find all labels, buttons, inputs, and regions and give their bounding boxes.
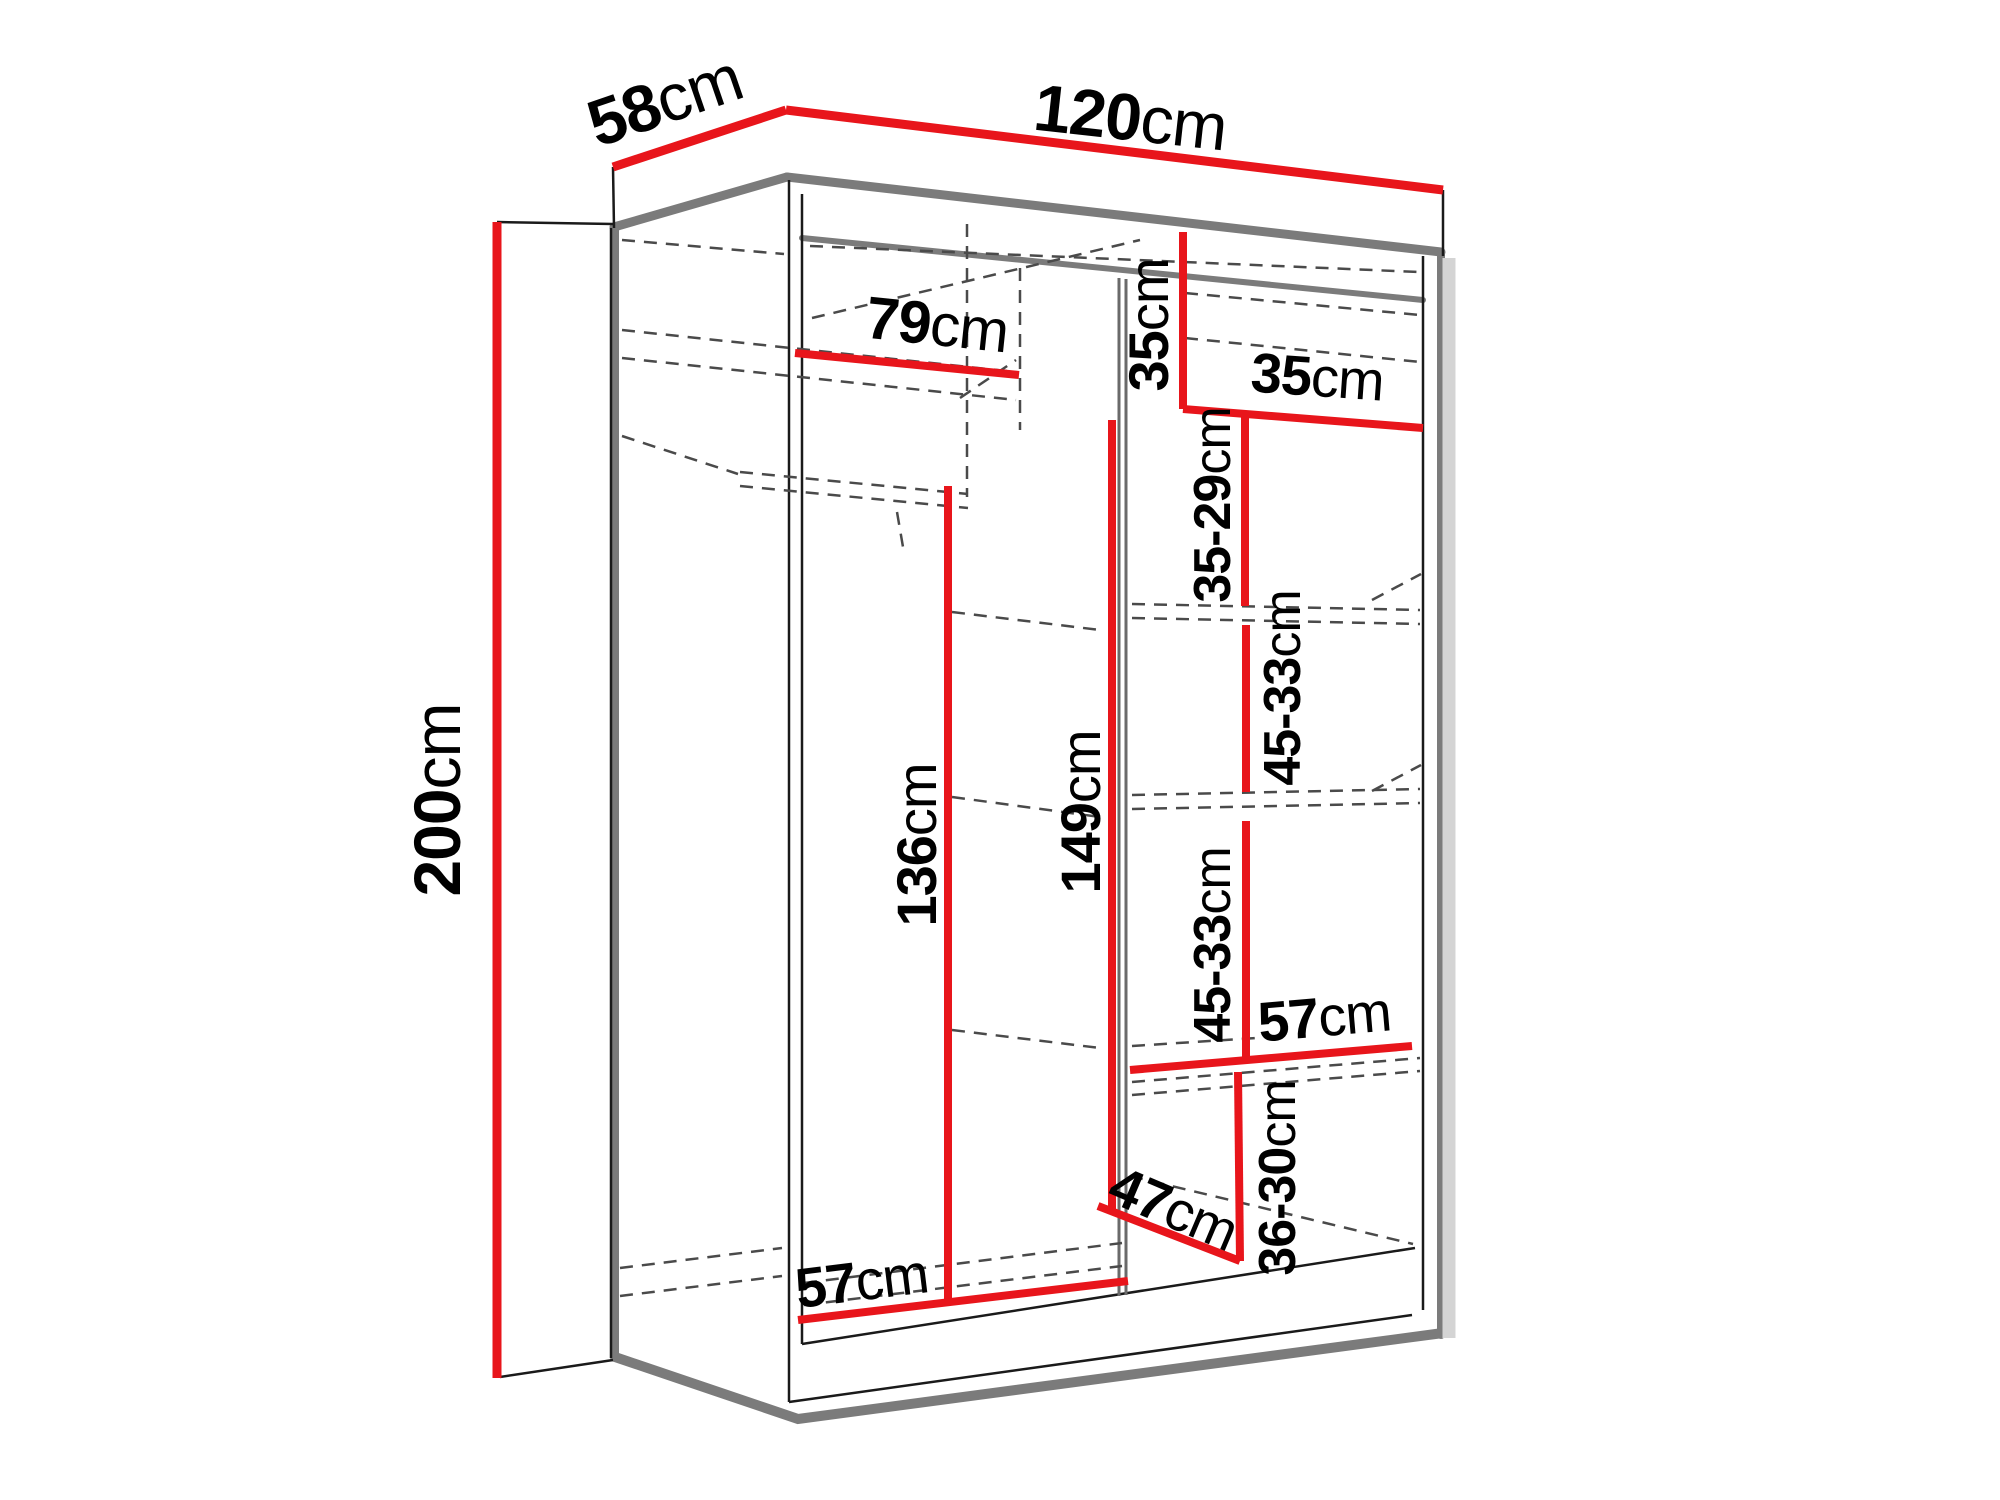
- right-shelf-width-label: 57cm: [1255, 979, 1393, 1053]
- top-right-shelf-width-label: 35cm: [1249, 340, 1386, 412]
- rail-side-dash: [622, 436, 738, 474]
- left-panel-bottom-dash-1: [620, 1248, 782, 1268]
- wardrobe-dimension-diagram: 58cm 120cm 200cm 79cm 35cm 35cm 35-29cm …: [0, 0, 2000, 1500]
- shelf2-front-dash: [1132, 789, 1420, 795]
- top-shelf-depth-dash: [960, 360, 1016, 398]
- hanging-rail-dash-top: [740, 472, 968, 494]
- upper-shelf-gap-label: 35-29cm: [1184, 407, 1242, 602]
- lower-shelf-gap-label: 36-30cm: [1249, 1080, 1307, 1275]
- shelf1-left-dash: [952, 612, 1100, 630]
- plinth-bottom-edge: [789, 1315, 1412, 1402]
- ceiling-dash-left: [622, 240, 784, 254]
- right-column-height-label: 149cm: [1049, 730, 1112, 893]
- left-panel-bottom-dash-2: [620, 1276, 782, 1296]
- height-extension-top: [497, 222, 613, 224]
- top-shelf-front-dash: [622, 358, 1016, 400]
- hanging-height-label: 136cm: [885, 763, 948, 926]
- top-left-corner-edge: [613, 167, 614, 228]
- depth-label: 58cm: [578, 40, 751, 161]
- rail-hook-dash: [897, 512, 903, 547]
- shoe-shelf-depth-label: 47cm: [1100, 1153, 1247, 1263]
- shelf2-edge-dash: [1132, 803, 1420, 809]
- top-shelf-width-label: 79cm: [863, 284, 1012, 366]
- width-label: 120cm: [1030, 70, 1230, 165]
- shelf1-depth-dash: [1372, 574, 1421, 600]
- diagram-canvas: 58cm 120cm 200cm 79cm 35cm 35cm 35-29cm …: [0, 0, 2000, 1500]
- top-panel-left-edge: [614, 177, 787, 227]
- height-label: 200cm: [400, 703, 474, 896]
- middle-shelf-gap2-label: 45-33cm: [1184, 847, 1242, 1042]
- middle-shelf-gap1-label: 45-33cm: [1254, 590, 1312, 785]
- bottom-shadow-edge: [615, 1333, 1443, 1419]
- shelf3-left-dash: [952, 1030, 1100, 1048]
- top-panel-front-edge: [787, 177, 1441, 252]
- center-divider: [1119, 278, 1126, 1296]
- top-section-height-label: 35cm: [1117, 259, 1180, 392]
- lower-shelf-gap-line: [1238, 1072, 1240, 1261]
- shelf2-depth-dash: [1372, 765, 1421, 791]
- hanging-rail-dash-bottom: [740, 486, 968, 508]
- height-extension-bottom: [500, 1360, 613, 1377]
